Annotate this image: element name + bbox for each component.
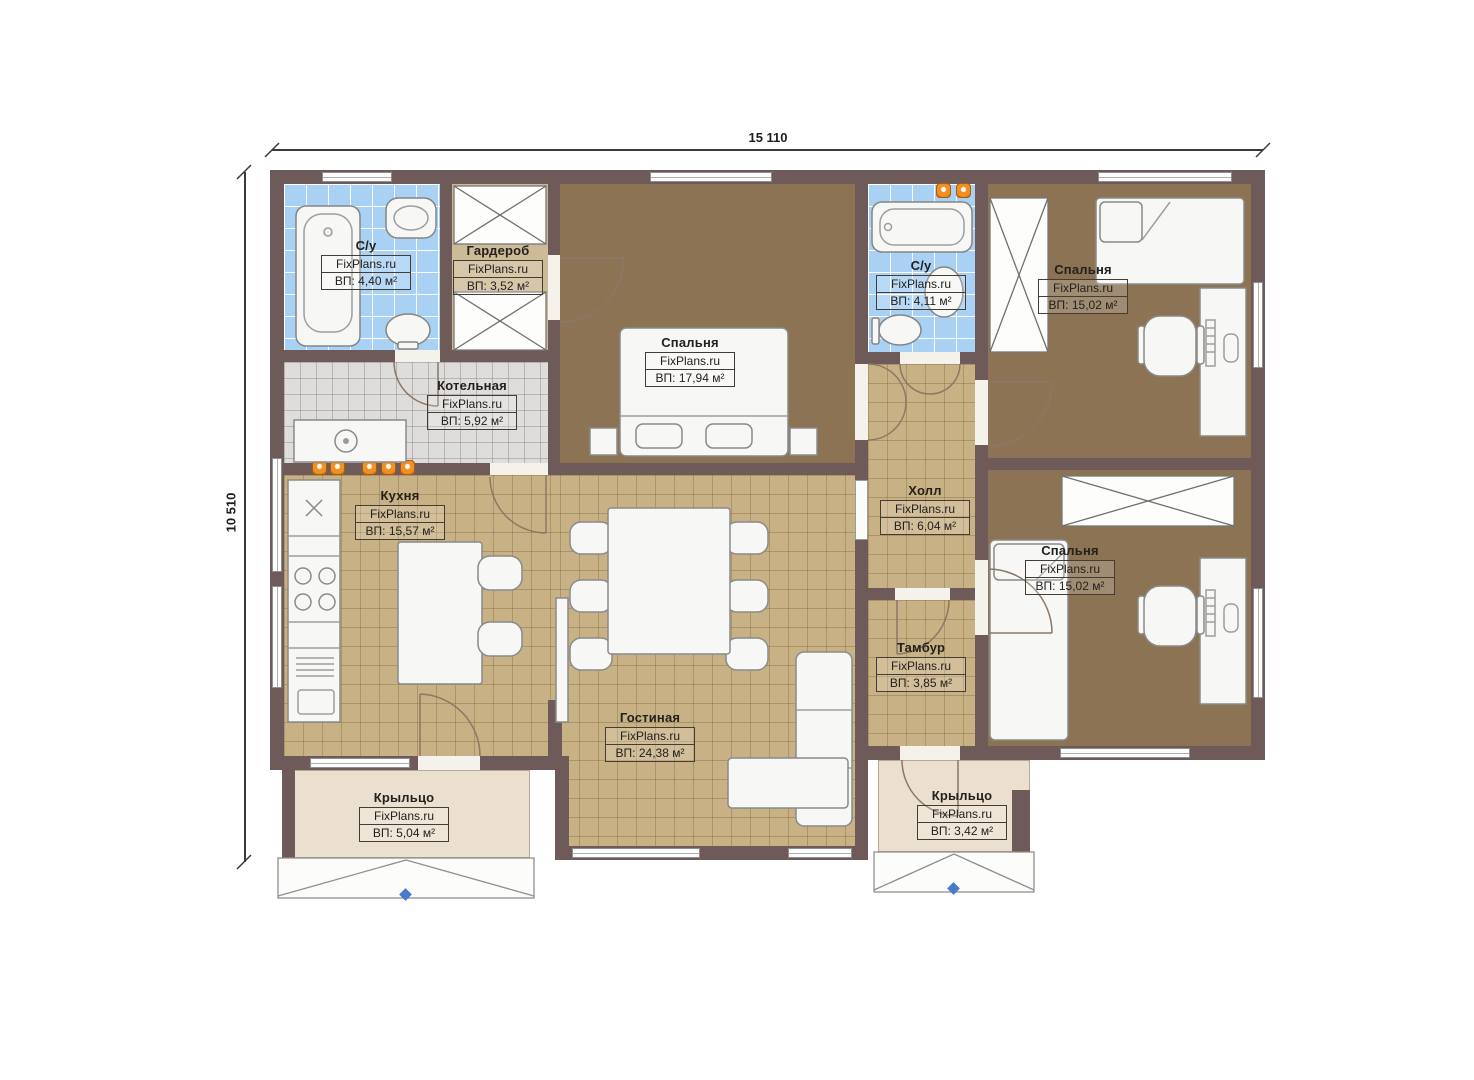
living-room-floor [560,475,868,846]
room-name: Кухня [336,488,464,503]
watermark: FixPlans.ru [454,261,542,278]
watermark: FixPlans.ru [1026,561,1114,578]
living-bay-wall-left [555,756,569,860]
hall-floor [868,364,975,588]
door-opening [975,560,988,635]
door-opening [490,463,548,475]
wall-hall-vestibule-b [950,588,975,600]
room-name: Гостиная [586,710,714,725]
room-label-bedroom-1: Спальня FixPlans.ru ВП: 17,94 м² [626,335,754,387]
radiator-icon [312,460,327,475]
radiator-icon [936,183,951,198]
radiator-icon [330,460,345,475]
wall-hall-left-b [855,440,868,480]
room-label-kitchen: Кухня FixPlans.ru ВП: 15,57 м² [336,488,464,540]
room-area: ВП: 5,92 м² [428,413,516,429]
room-area: ВП: 15,02 м² [1039,297,1127,313]
door-leaf-living [855,480,868,540]
room-label-box: FixPlans.ru ВП: 17,94 м² [645,352,735,387]
room-label-box: FixPlans.ru ВП: 15,02 м² [1038,279,1128,314]
window [1253,588,1263,698]
window [1253,282,1263,368]
dimension-line-left [244,172,246,862]
wall-bathroom1-boiler-b [440,350,560,362]
level-marker [399,888,412,901]
room-name: Спальня [626,335,754,350]
room-label-box: FixPlans.ru ВП: 15,57 м² [355,505,445,540]
room-name: Холл [870,483,980,498]
bedroom-2-floor [988,184,1251,458]
radiator-icon [362,460,377,475]
door-opening [548,255,560,320]
door-opening [855,364,868,440]
room-name: Крыльцо [898,788,1026,803]
room-name: Спальня [1006,543,1134,558]
room-area: ВП: 3,42 м² [918,823,1006,839]
wall-bathroom2-bottom-b [960,352,975,364]
room-label-porch-right: Крыльцо FixPlans.ru ВП: 3,42 м² [898,788,1026,840]
watermark: FixPlans.ru [1039,280,1127,297]
dimension-label-height: 10 510 [224,468,239,558]
door-opening [975,380,988,445]
room-label-vestibule: Тамбур FixPlans.ru ВП: 3,85 м² [866,640,976,692]
door-opening [900,746,960,760]
porch-left-side-wall [282,770,295,858]
room-name: С/у [859,258,983,273]
room-area: ВП: 6,04 м² [881,518,969,534]
watermark: FixPlans.ru [877,276,965,293]
room-label-living-room: Гостиная FixPlans.ru ВП: 24,38 м² [586,710,714,762]
room-area: ВП: 4,11 м² [877,293,965,309]
watermark: FixPlans.ru [428,396,516,413]
room-label-box: FixPlans.ru ВП: 5,92 м² [427,395,517,430]
wall-wardrobe-bedroom1-a [548,184,560,255]
wall-bedroom2-bedroom3 [988,458,1251,470]
door-opening [900,352,960,364]
window [1060,748,1190,758]
room-area: ВП: 15,02 м² [1026,578,1114,594]
room-label-box: FixPlans.ru ВП: 24,38 м² [605,727,695,762]
room-name: Тамбур [866,640,976,655]
bedroom-1-floor [560,184,855,463]
room-name: Крыльцо [340,790,468,805]
window [572,848,700,858]
room-name: Котельная [408,378,536,393]
watermark: FixPlans.ru [356,506,444,523]
room-label-bedroom-2: Спальня FixPlans.ru ВП: 15,02 м² [1019,262,1147,314]
watermark: FixPlans.ru [322,256,410,273]
watermark: FixPlans.ru [360,808,448,825]
room-area: ВП: 17,94 м² [646,370,734,386]
bedroom-3-floor [988,470,1251,746]
wall-bathroom2-bottom-a [868,352,900,364]
room-name: Спальня [1019,262,1147,277]
wall-wardrobe-bedroom1-b [548,320,560,475]
window [272,458,282,572]
room-label-box: FixPlans.ru ВП: 3,52 м² [453,260,543,295]
window [788,848,852,858]
radiator-icon [400,460,415,475]
watermark: FixPlans.ru [881,501,969,518]
window [310,758,410,768]
dimension-line-top [272,149,1263,151]
room-name: С/у [302,238,430,253]
dimension-label-width: 15 110 [718,130,818,145]
door-opening [418,756,480,770]
room-area: ВП: 15,57 м² [356,523,444,539]
room-area: ВП: 3,52 м² [454,278,542,294]
wall-kitchen-living-stub [548,700,562,758]
window [650,172,772,182]
window [272,586,282,688]
window [1098,172,1232,182]
room-label-bathroom-2: С/у FixPlans.ru ВП: 4,11 м² [859,258,983,310]
watermark: FixPlans.ru [646,353,734,370]
door-opening [395,350,440,362]
room-label-wardrobe: Гардероб FixPlans.ru ВП: 3,52 м² [450,243,546,295]
window [322,172,392,182]
room-label-box: FixPlans.ru ВП: 4,40 м² [321,255,411,290]
room-label-boiler-room: Котельная FixPlans.ru ВП: 5,92 м² [408,378,536,430]
room-label-box: FixPlans.ru ВП: 6,04 м² [880,500,970,535]
room-label-porch-left: Крыльцо FixPlans.ru ВП: 5,04 м² [340,790,468,842]
room-label-bedroom-3: Спальня FixPlans.ru ВП: 15,02 м² [1006,543,1134,595]
wall-hall-right-c [975,635,988,746]
wall-bathroom1-boiler-a [284,350,395,362]
room-area: ВП: 24,38 м² [606,745,694,761]
radiator-icon [381,460,396,475]
wall-hall-left-c [855,540,868,846]
room-label-hall: Холл FixPlans.ru ВП: 6,04 м² [870,483,980,535]
wall-hall-vestibule-a [868,588,895,600]
watermark: FixPlans.ru [877,658,965,675]
room-name: Гардероб [450,243,546,258]
watermark: FixPlans.ru [606,728,694,745]
room-label-box: FixPlans.ru ВП: 5,04 м² [359,807,449,842]
room-label-bathroom-1: С/у FixPlans.ru ВП: 4,40 м² [302,238,430,290]
room-label-box: FixPlans.ru ВП: 3,42 м² [917,805,1007,840]
room-label-box: FixPlans.ru ВП: 4,11 м² [876,275,966,310]
room-area: ВП: 3,85 м² [877,675,965,691]
floor-plan: 15 110 10 510 [0,0,1474,1080]
wall-bedroom1-living [548,463,868,475]
room-area: ВП: 5,04 м² [360,825,448,841]
door-opening [895,588,950,600]
watermark: FixPlans.ru [918,806,1006,823]
room-area: ВП: 4,40 м² [322,273,410,289]
room-label-box: FixPlans.ru ВП: 15,02 м² [1025,560,1115,595]
radiator-icon [956,183,971,198]
room-label-box: FixPlans.ru ВП: 3,85 м² [876,657,966,692]
level-marker [947,882,960,895]
